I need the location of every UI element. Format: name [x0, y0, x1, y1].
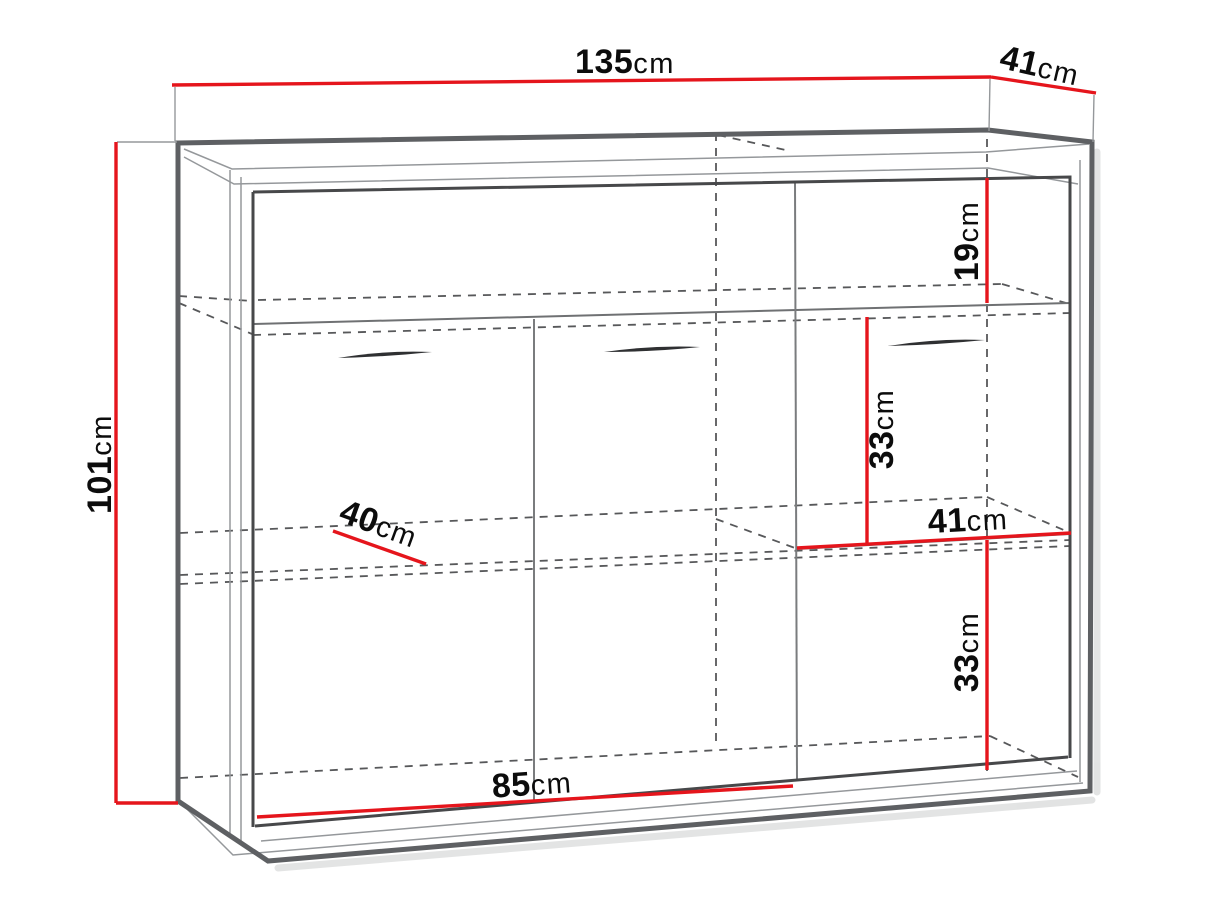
dim-height-total: 101cm [83, 414, 117, 514]
dim-right-lower-value: 33 [948, 653, 986, 692]
hidden-edges [179, 133, 1078, 778]
dim-top-niche-unit: cm [953, 201, 985, 243]
handle-left [338, 352, 432, 358]
dim-right-upper-height: 33cm [865, 389, 899, 470]
handle-middle [604, 347, 700, 352]
dim-top-niche-value: 19 [948, 242, 986, 281]
dim-width-total: 135cm [575, 45, 675, 79]
dimension-lines [116, 77, 1096, 817]
dim-right-upper-unit: cm [868, 389, 900, 431]
dim-left-width-unit: cm [530, 767, 574, 802]
dim-line-height-total [116, 142, 178, 803]
dim-right-width-unit: cm [966, 504, 1009, 538]
cabinet-drawing [0, 0, 1214, 910]
dim-right-compartment-width: 41cm [927, 501, 1009, 539]
door-dividers [534, 182, 797, 801]
dim-width-total-value: 135 [575, 43, 633, 81]
dim-top-niche-height: 19cm [950, 201, 984, 282]
dim-height-total-unit: cm [86, 414, 118, 456]
dim-right-lower-height: 33cm [950, 612, 984, 693]
dim-left-width-value: 85 [491, 765, 532, 806]
dim-height-total-value: 101 [81, 456, 119, 514]
dim-width-total-unit: cm [633, 48, 675, 80]
dim-left-compartment-width: 85cm [491, 764, 574, 804]
handle-right [888, 340, 985, 346]
dim-right-width-value: 41 [927, 501, 968, 541]
dim-right-upper-value: 33 [863, 430, 901, 469]
dimension-diagram: 135cm 41cm 101cm 19cm 33cm 41cm 33cm 40c… [0, 0, 1214, 910]
dim-right-lower-unit: cm [953, 612, 985, 654]
door-handles [338, 340, 985, 358]
